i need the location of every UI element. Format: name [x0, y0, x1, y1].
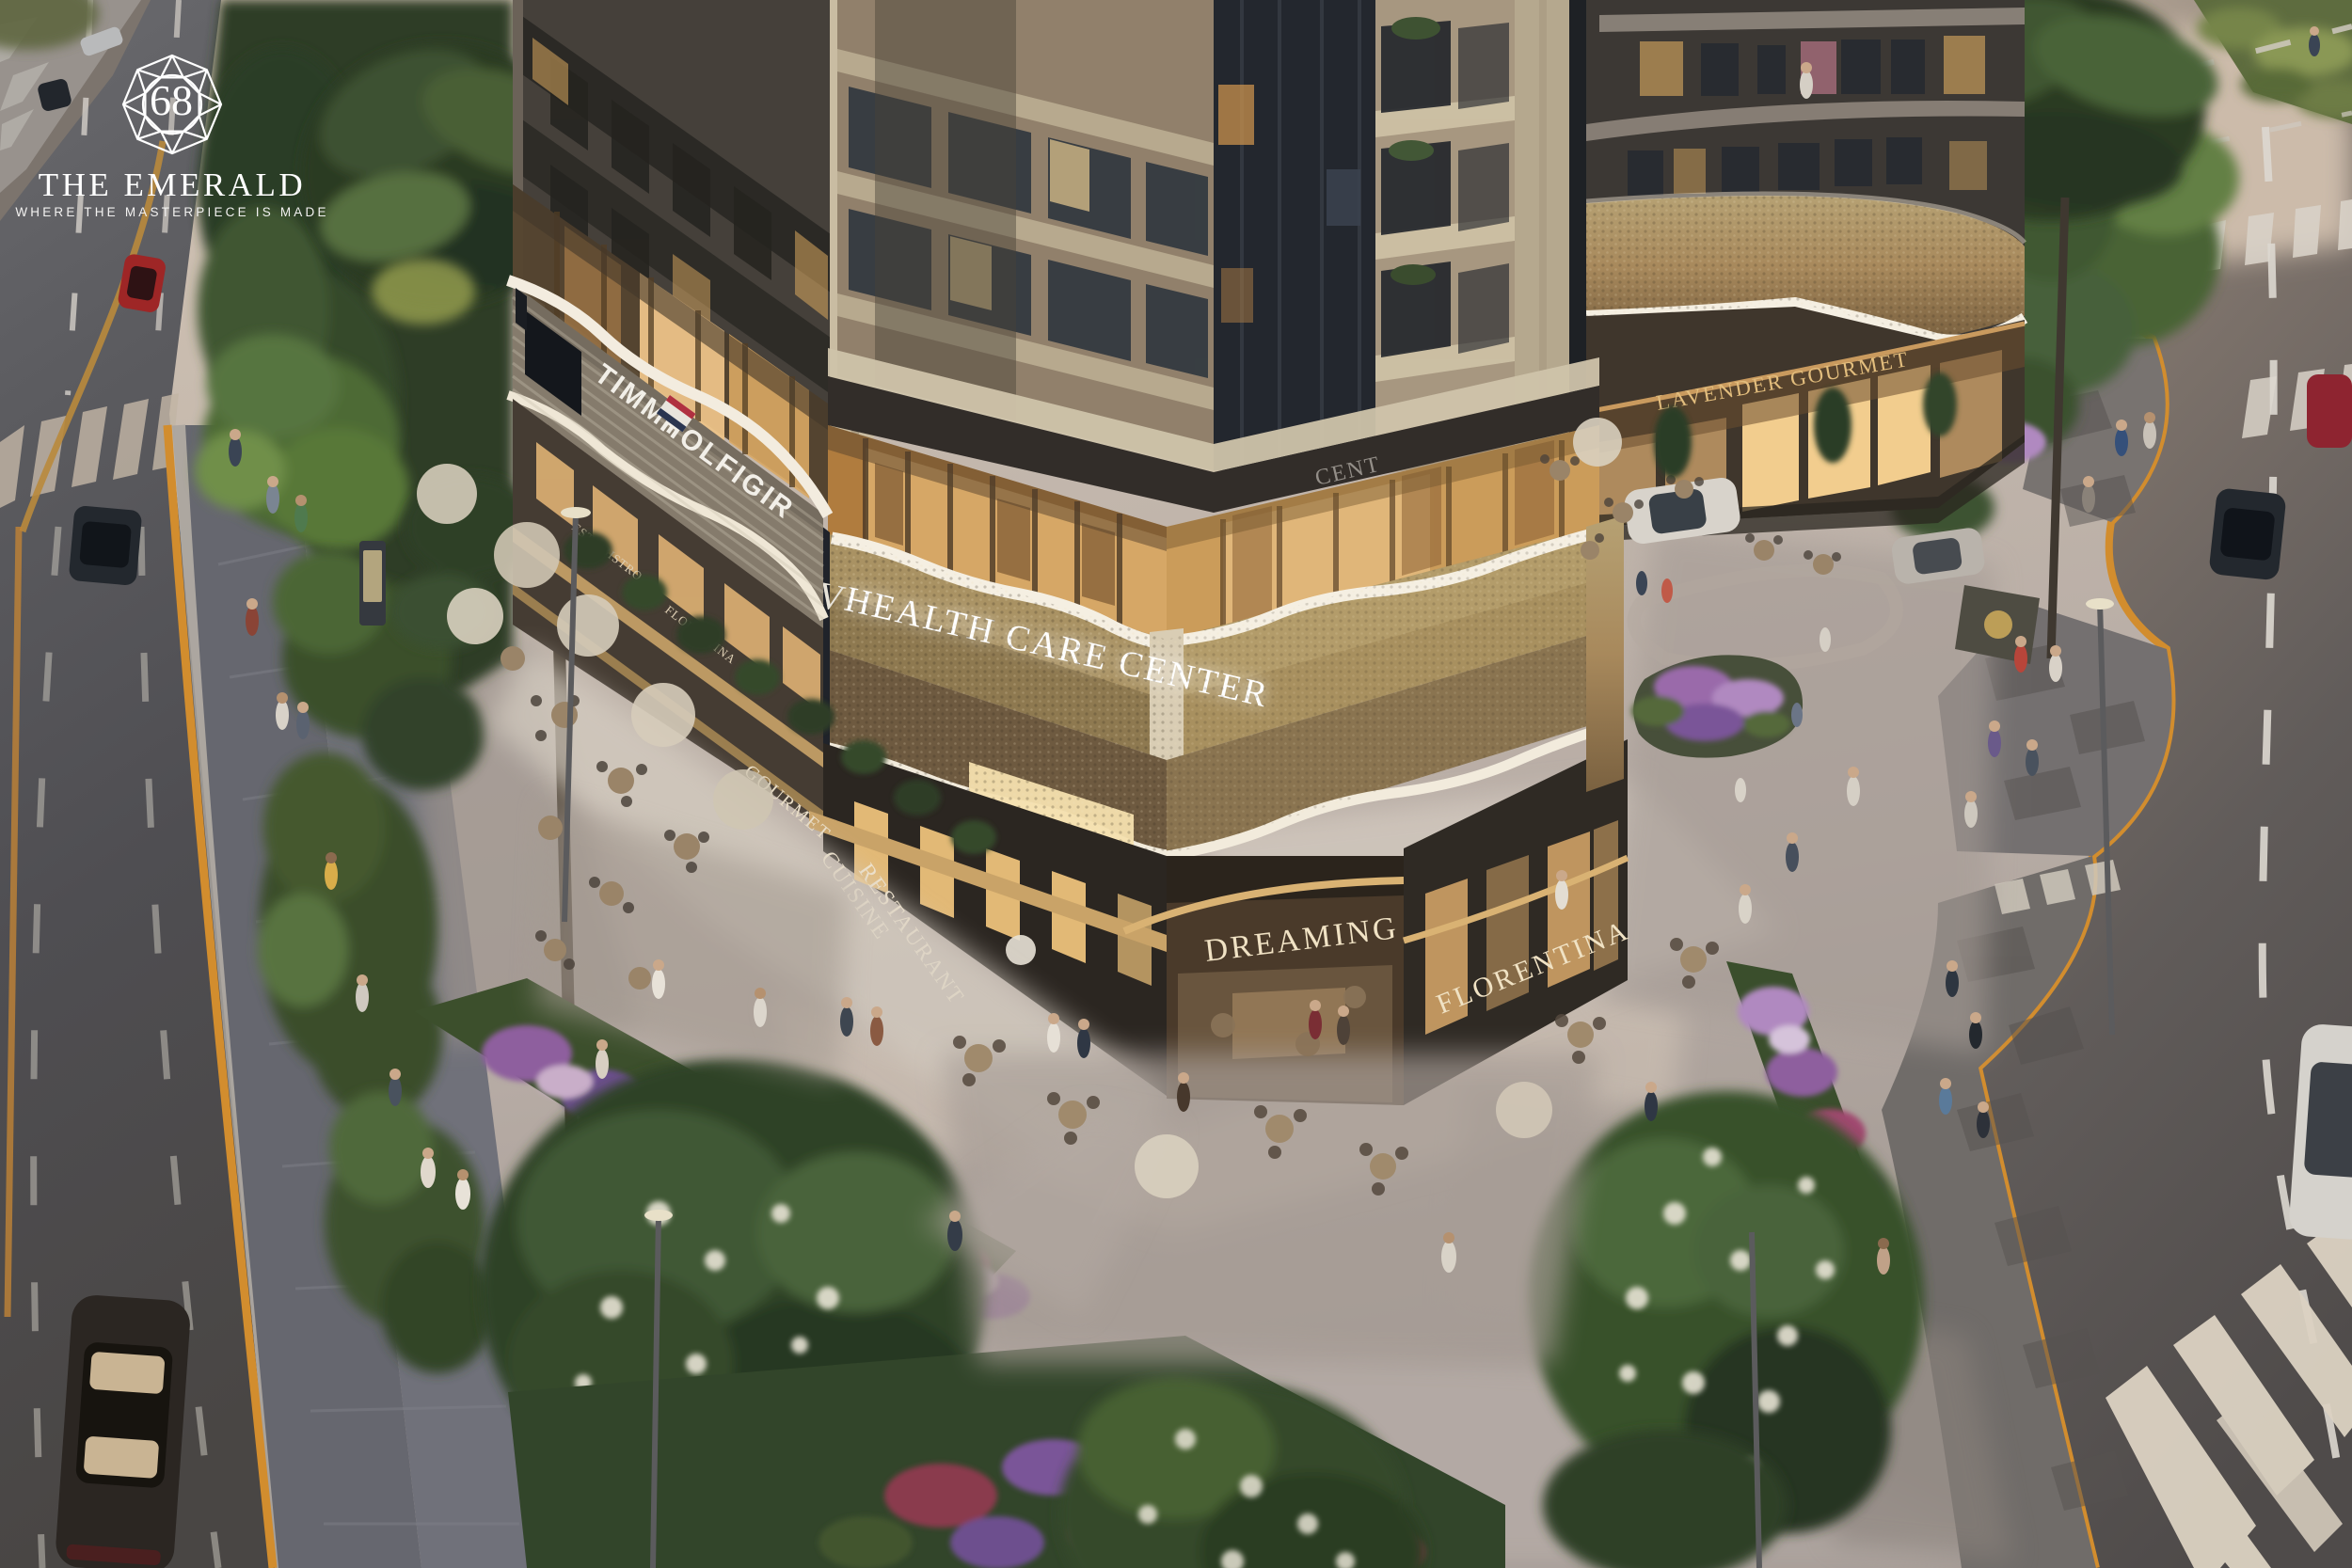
svg-text:WHERE THE MASTERPIECE IS MADE: WHERE THE MASTERPIECE IS MADE [15, 205, 328, 219]
svg-text:THE EMERALD: THE EMERALD [39, 166, 306, 203]
svg-text:68: 68 [150, 76, 193, 124]
